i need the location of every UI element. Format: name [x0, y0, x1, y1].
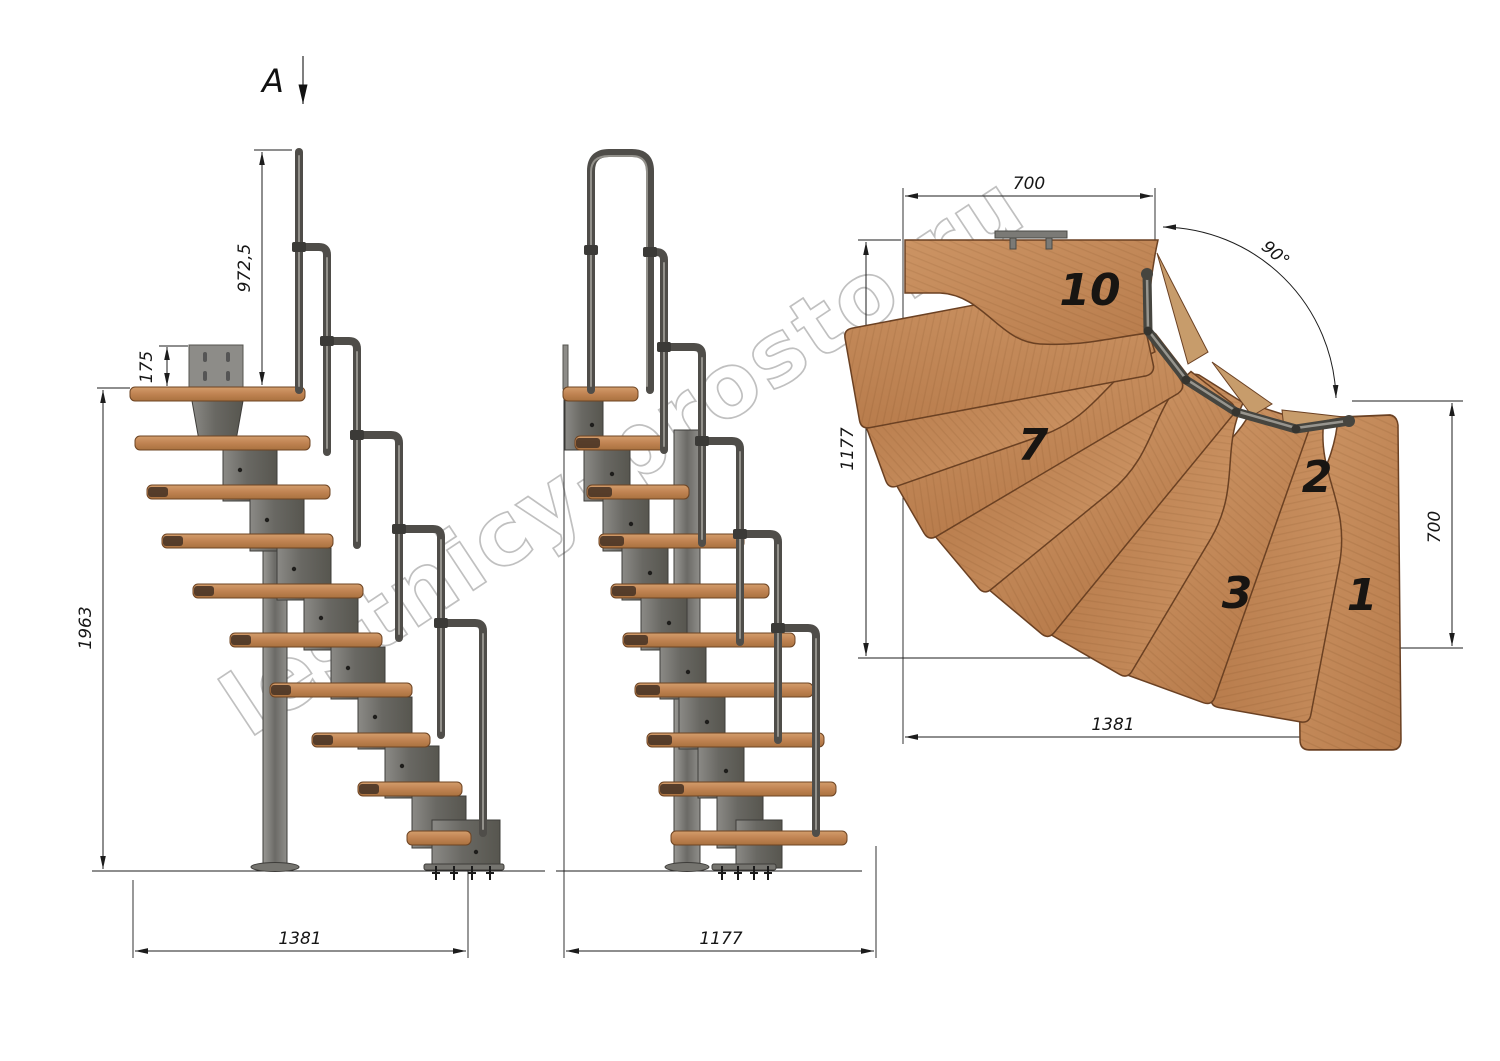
- column-base-plate: [665, 863, 709, 872]
- wall-bracket-edge: [563, 345, 568, 389]
- column-base-plate: [251, 863, 299, 872]
- dim-length: 1381: [278, 929, 321, 949]
- wall-mount-plate: [189, 345, 243, 390]
- plan-view: 700 90° 1177 700 1381: [838, 174, 1463, 750]
- dim-bracket-height: 175: [137, 351, 157, 383]
- stair-technical-drawing: lestnicy-prosto.ru A 972,5 175 1963 1381: [0, 0, 1500, 1061]
- step-number-7: 7: [1018, 420, 1049, 471]
- section-view-label: A: [260, 62, 284, 100]
- step-number-2: 2: [1302, 452, 1333, 503]
- dim-length-bottom: 1381: [1091, 715, 1134, 735]
- step-number-10: 10: [1059, 265, 1120, 316]
- step-number-3: 3: [1222, 568, 1253, 619]
- dim-turn-angle: 90°: [1257, 237, 1293, 272]
- step-number-1: 1: [1347, 570, 1378, 621]
- dim-width-top: 700: [1013, 174, 1045, 194]
- dim-depth-left: 1177: [838, 427, 858, 470]
- drawing-canvas: lestnicy-prosto.ru A 972,5 175 1963 1381: [0, 0, 1500, 1061]
- dim-depth-right: 700: [1425, 511, 1445, 543]
- dim-handrail-height: 972,5: [235, 244, 255, 293]
- turn-angle-arc: [1163, 227, 1336, 398]
- dim-total-height: 1963: [76, 606, 96, 649]
- dim-length: 1177: [699, 929, 742, 949]
